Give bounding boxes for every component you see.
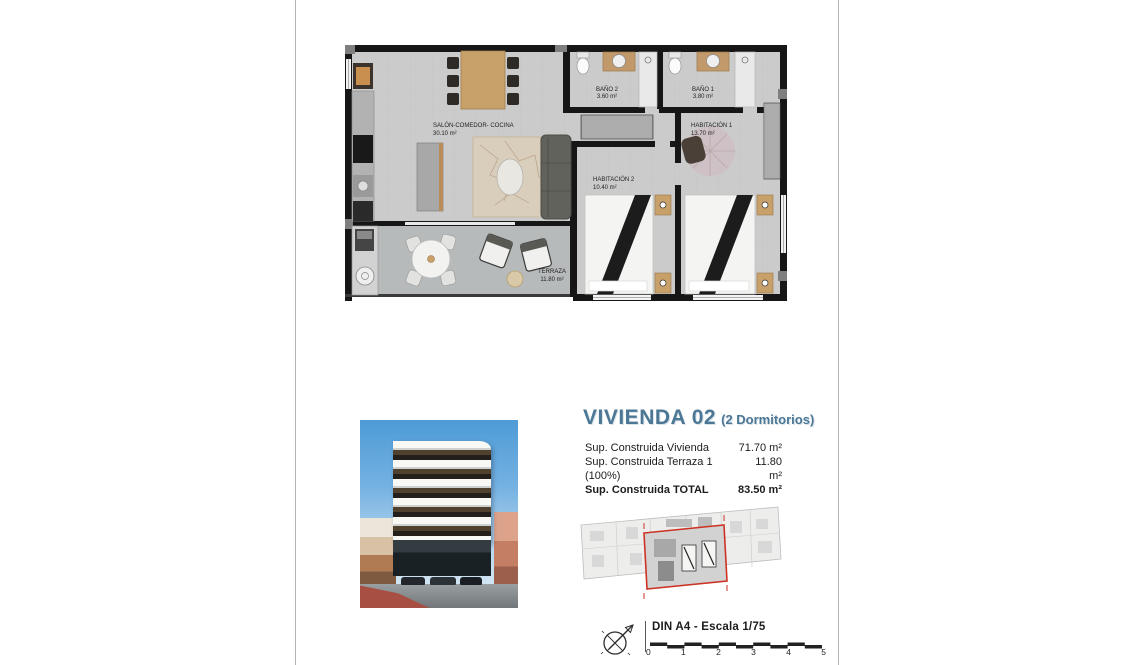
scale-tick: 3 — [751, 647, 756, 657]
dining-table — [447, 51, 519, 109]
room-area-hab2: 10.40 m² — [593, 185, 617, 191]
spec-label: Sup. Construida Vivienda — [585, 441, 709, 455]
scale-tick: 0 — [646, 647, 651, 657]
page-edge-right — [838, 0, 839, 665]
spec-label: Sup. Construida Terraza 1 (100%) — [585, 455, 742, 483]
unit-title-main: VIVIENDA 02 — [583, 406, 716, 429]
room-area-salon: 30.10 m² — [433, 131, 457, 137]
room-area-terraza: 11.80 m² — [540, 277, 563, 283]
scale-tick: 2 — [716, 647, 721, 657]
neighbor-building-left — [360, 518, 396, 586]
car — [401, 577, 425, 585]
living-area — [473, 135, 571, 219]
spec-row-vivienda: Sup. Construida Vivienda 71.70 m² — [585, 441, 782, 455]
key-plan — [578, 497, 784, 605]
room-label-hab2: HABITACIÓN 2 — [593, 176, 635, 183]
car — [460, 577, 482, 585]
surface-specs: Sup. Construida Vivienda 71.70 m² Sup. C… — [585, 441, 782, 497]
room-label-salon: SALÓN-COMEDOR- COCINA — [433, 122, 514, 129]
spec-row-total: Sup. Construida TOTAL 83.50 m² — [585, 483, 782, 497]
spec-value: 11.80 m² — [742, 455, 782, 483]
car — [430, 577, 457, 585]
scale-tick: 4 — [786, 647, 791, 657]
room-label-hab1: HABITACIÓN 1 — [691, 122, 733, 129]
room-label-bano1: BAÑO 1 — [692, 86, 715, 93]
room-label-bano2: BAÑO 2 — [596, 86, 619, 93]
scale-tick: 5 — [821, 647, 826, 657]
scale-numbers: 0 1 2 3 4 5 — [646, 647, 826, 657]
spec-row-terraza: Sup. Construida Terraza 1 (100%) 11.80 m… — [585, 455, 782, 483]
room-area-bano1: 3.80 m² — [693, 94, 713, 100]
room-area-hab1: 13.70 m² — [691, 131, 715, 137]
spec-label: Sup. Construida TOTAL — [585, 483, 709, 497]
page-edge-left — [295, 0, 296, 665]
room-area-bano2: 3.60 m² — [597, 94, 617, 100]
scale-label: DIN A4 - Escala 1/75 — [652, 621, 766, 633]
unit-title-sub: (2 Dormitorios) — [721, 412, 814, 427]
north-compass-icon — [597, 619, 641, 659]
spec-value: 71.70 m² — [739, 441, 782, 455]
building-base — [393, 540, 491, 576]
scale-tick: 1 — [681, 647, 686, 657]
building-photo — [360, 420, 518, 608]
main-building — [393, 441, 491, 544]
spec-value: 83.50 m² — [738, 483, 782, 497]
unit-title: VIVIENDA 02(2 Dormitorios) — [583, 406, 814, 430]
room-label-terraza: TERRAZA — [538, 269, 566, 275]
floor-plan: SALÓN-COMEDOR- COCINA 30.10 m² BAÑO 2 3.… — [345, 45, 787, 301]
neighbor-building-right — [494, 512, 518, 585]
